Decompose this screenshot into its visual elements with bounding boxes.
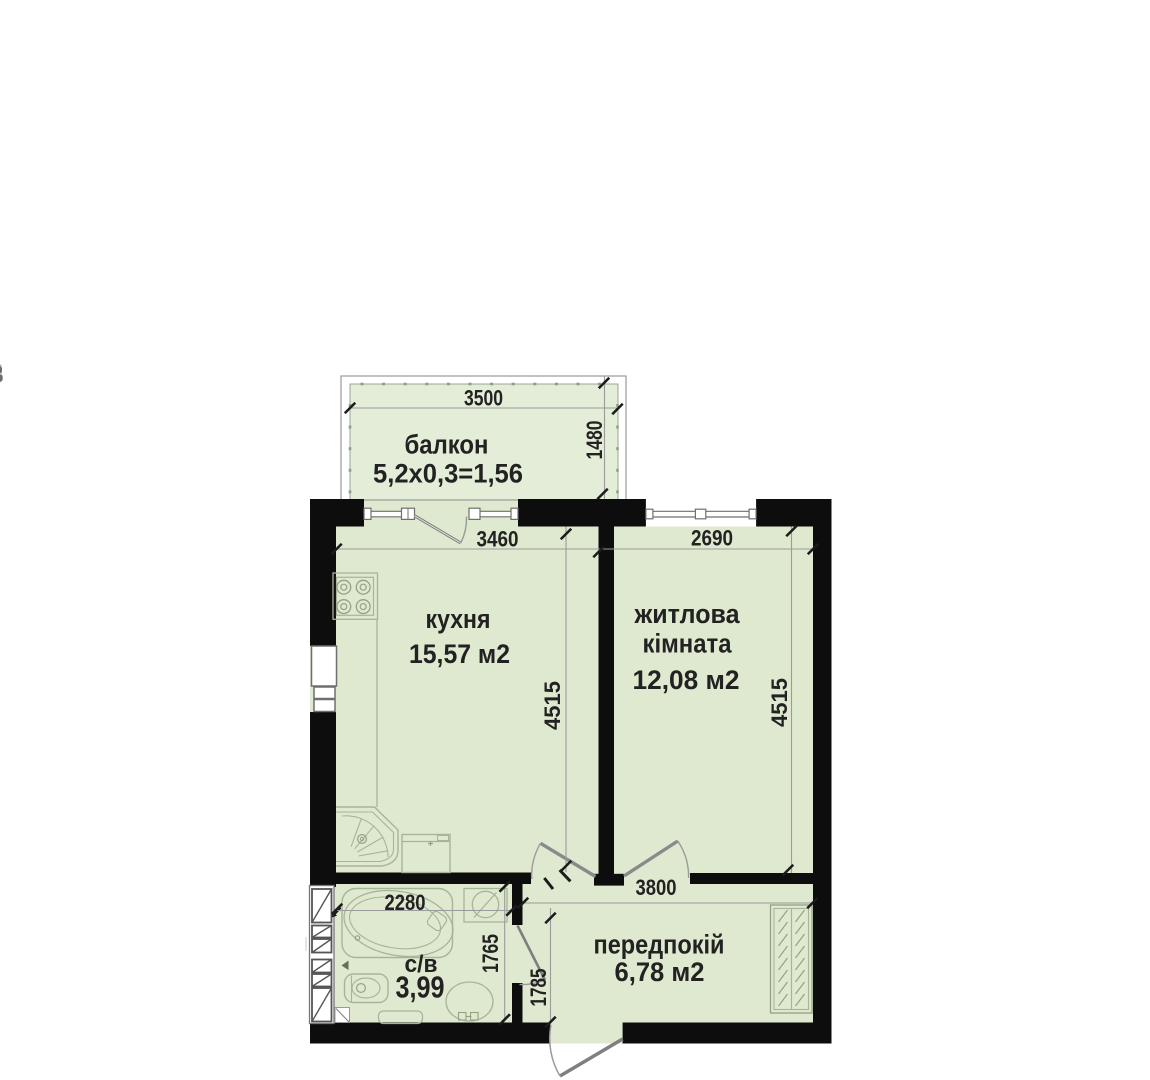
svg-text:1480: 1480 — [582, 421, 607, 460]
svg-text:передпокій: передпокій — [594, 930, 725, 960]
svg-text:3800: 3800 — [636, 875, 677, 900]
svg-text:5,2х0,3=1,56: 5,2х0,3=1,56 — [373, 459, 523, 489]
svg-text:4515: 4515 — [767, 678, 792, 727]
svg-text:1785: 1785 — [526, 969, 551, 1007]
svg-text:кухня: кухня — [426, 604, 491, 634]
svg-text:1765: 1765 — [478, 934, 503, 973]
svg-text:12,08 м2: 12,08 м2 — [633, 665, 740, 695]
svg-text:3500: 3500 — [464, 385, 503, 410]
svg-text:2690: 2690 — [691, 525, 733, 550]
svg-text:15,57 м2: 15,57 м2 — [409, 639, 510, 669]
svg-text:6,78 м2: 6,78 м2 — [615, 957, 705, 987]
svg-text:житлова: житлова — [634, 599, 741, 629]
svg-text:кімната: кімната — [643, 629, 733, 659]
svg-text:балкон: балкон — [405, 430, 489, 460]
svg-text:3,99: 3,99 — [396, 970, 445, 1005]
svg-text:3460: 3460 — [477, 526, 519, 551]
svg-text:2280: 2280 — [385, 890, 426, 915]
svg-text:4515: 4515 — [540, 681, 565, 730]
